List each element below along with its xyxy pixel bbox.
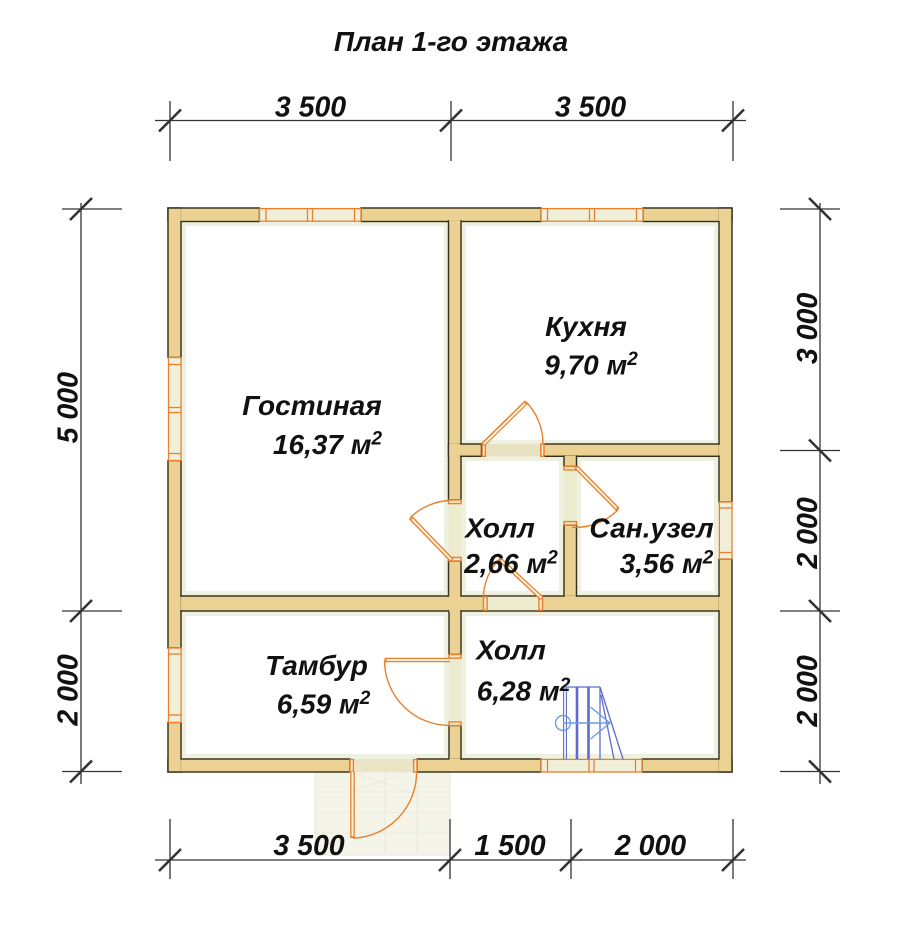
svg-text:6,59 м2: 6,59 м2 bbox=[277, 688, 371, 720]
svg-text:2 000: 2 000 bbox=[53, 654, 85, 726]
svg-text:Тамбур: Тамбур bbox=[265, 650, 368, 681]
svg-text:3 500: 3 500 bbox=[555, 92, 626, 124]
svg-text:2 000: 2 000 bbox=[792, 655, 824, 727]
svg-text:Гостиная: Гостиная bbox=[242, 390, 381, 421]
svg-text:Сан.узел: Сан.узел bbox=[589, 513, 713, 544]
svg-text:2,66 м2: 2,66 м2 bbox=[463, 548, 558, 580]
svg-text:3 500: 3 500 bbox=[275, 92, 346, 124]
svg-text:3,56 м2: 3,56 м2 bbox=[620, 548, 714, 580]
svg-text:6,28 м2: 6,28 м2 bbox=[477, 675, 571, 707]
svg-text:Холл: Холл bbox=[463, 513, 535, 544]
svg-text:2 000: 2 000 bbox=[792, 497, 824, 569]
svg-text:5 000: 5 000 bbox=[53, 372, 85, 443]
svg-text:9,70 м2: 9,70 м2 bbox=[544, 349, 638, 381]
svg-text:1 500: 1 500 bbox=[474, 830, 545, 862]
svg-text:3 000: 3 000 bbox=[792, 293, 824, 364]
svg-text:План 1-го этажа: План 1-го этажа bbox=[334, 26, 568, 57]
svg-text:Холл: Холл bbox=[474, 635, 546, 666]
svg-text:16,37 м2: 16,37 м2 bbox=[273, 429, 383, 461]
svg-text:3 500: 3 500 bbox=[273, 830, 344, 862]
svg-text:Кухня: Кухня bbox=[545, 311, 627, 342]
svg-text:2 000: 2 000 bbox=[614, 830, 686, 862]
